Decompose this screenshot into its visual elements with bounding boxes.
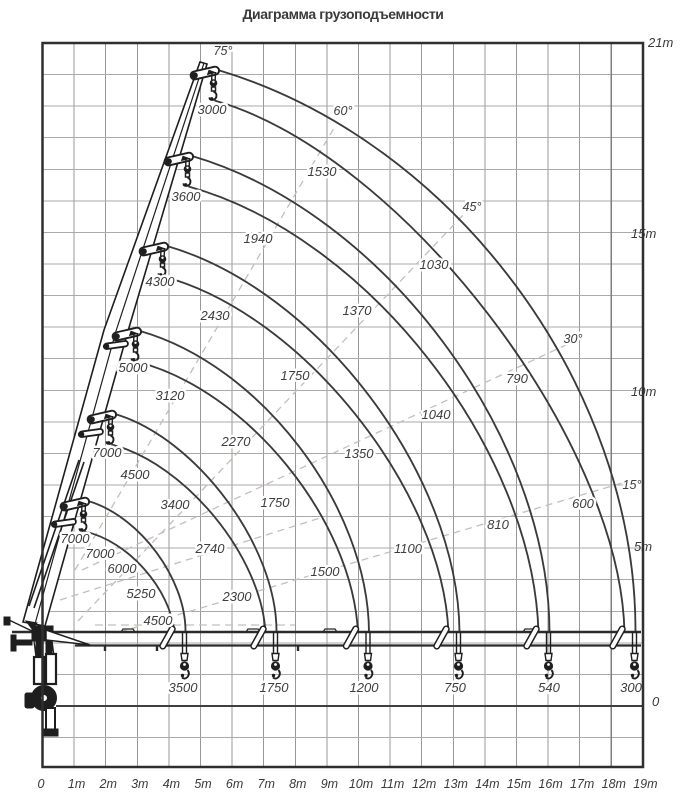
svg-text:17m: 17m [570, 777, 594, 791]
svg-text:14m: 14m [475, 777, 499, 791]
svg-text:18m: 18m [602, 777, 626, 791]
svg-text:5250: 5250 [127, 586, 157, 601]
svg-text:1370: 1370 [343, 303, 373, 318]
svg-text:3000: 3000 [198, 102, 228, 117]
svg-text:11m: 11m [381, 777, 404, 791]
svg-text:13m: 13m [444, 777, 468, 791]
svg-text:6000: 6000 [108, 561, 138, 576]
svg-text:1030: 1030 [420, 257, 450, 272]
svg-text:1750: 1750 [281, 368, 311, 383]
svg-text:9m: 9m [321, 777, 338, 791]
svg-text:15m: 15m [507, 777, 531, 791]
svg-text:3400: 3400 [161, 497, 191, 512]
svg-text:7m: 7m [258, 777, 275, 791]
svg-text:4500: 4500 [121, 467, 151, 482]
svg-text:1500: 1500 [311, 564, 341, 579]
svg-text:4500: 4500 [144, 613, 174, 628]
svg-text:19m: 19m [633, 777, 657, 791]
svg-text:3500: 3500 [169, 680, 199, 695]
svg-text:5000: 5000 [119, 360, 149, 375]
svg-text:5m: 5m [194, 777, 211, 791]
svg-text:16m: 16m [538, 777, 562, 791]
svg-text:8m: 8m [289, 777, 306, 791]
svg-text:1530: 1530 [308, 164, 338, 179]
svg-text:15°: 15° [623, 478, 642, 492]
svg-text:2740: 2740 [195, 541, 226, 556]
svg-text:810: 810 [487, 517, 509, 532]
svg-text:790: 790 [506, 371, 528, 386]
svg-text:45°: 45° [463, 200, 482, 214]
svg-text:1750: 1750 [260, 680, 290, 695]
svg-text:3120: 3120 [156, 388, 186, 403]
svg-text:2300: 2300 [222, 589, 253, 604]
svg-text:21m: 21m [647, 35, 673, 50]
svg-text:7000: 7000 [86, 546, 116, 561]
svg-text:1200: 1200 [350, 680, 380, 695]
svg-text:3600: 3600 [172, 189, 202, 204]
svg-text:540: 540 [538, 680, 560, 695]
svg-text:1100: 1100 [394, 541, 423, 556]
svg-text:1040: 1040 [422, 407, 452, 422]
svg-text:2430: 2430 [200, 308, 231, 323]
svg-text:2m: 2m [99, 777, 117, 791]
svg-text:1350: 1350 [345, 446, 375, 461]
svg-text:4m: 4m [163, 777, 180, 791]
svg-text:600: 600 [572, 496, 594, 511]
svg-text:7000: 7000 [93, 445, 123, 460]
svg-text:2270: 2270 [221, 434, 252, 449]
svg-text:1750: 1750 [261, 495, 291, 510]
svg-text:0: 0 [652, 694, 660, 709]
svg-text:12m: 12m [412, 777, 436, 791]
svg-text:750: 750 [444, 680, 466, 695]
svg-text:0: 0 [38, 777, 45, 791]
svg-text:6m: 6m [226, 777, 243, 791]
svg-text:4300: 4300 [146, 274, 176, 289]
svg-text:75°: 75° [214, 44, 233, 58]
svg-text:1m: 1m [68, 777, 85, 791]
svg-text:300: 300 [620, 680, 642, 695]
svg-text:Диаграмма грузоподъемности: Диаграмма грузоподъемности [242, 6, 443, 22]
svg-text:60°: 60° [334, 104, 353, 118]
svg-text:7000: 7000 [61, 531, 91, 546]
svg-text:10m: 10m [349, 777, 373, 791]
svg-text:3m: 3m [131, 777, 148, 791]
svg-text:1940: 1940 [244, 231, 274, 246]
svg-text:30°: 30° [564, 332, 583, 346]
